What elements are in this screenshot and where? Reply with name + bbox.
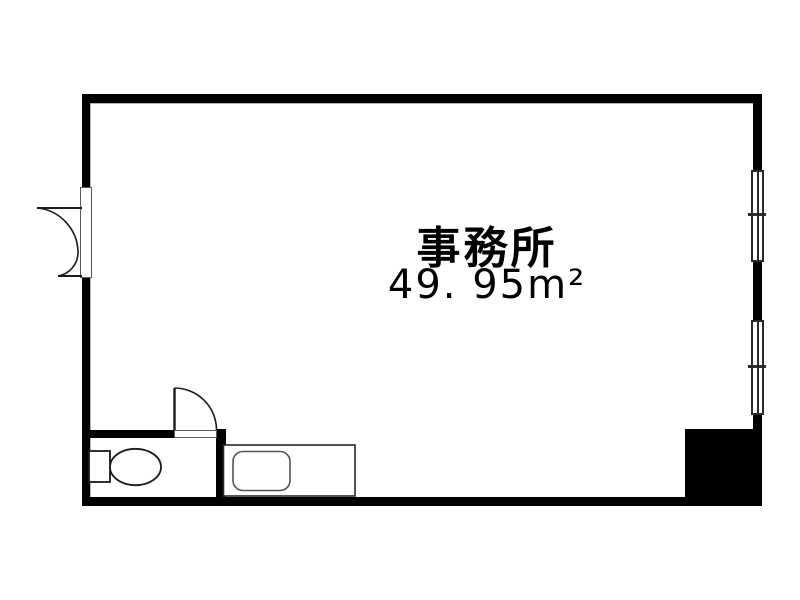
- entry-door-small-arc: [58, 252, 78, 276]
- toilet-door-arc: [175, 388, 217, 430]
- toilet-bowl-icon: [110, 449, 161, 485]
- toilet-tank-icon: [89, 451, 110, 482]
- room-area-label: 49. 95m²: [352, 262, 622, 308]
- entry-door-large-arc: [37, 208, 78, 252]
- kitchen-sink-icon: [233, 452, 290, 491]
- floorplan-canvas: 事務所 49. 95m²: [0, 0, 800, 600]
